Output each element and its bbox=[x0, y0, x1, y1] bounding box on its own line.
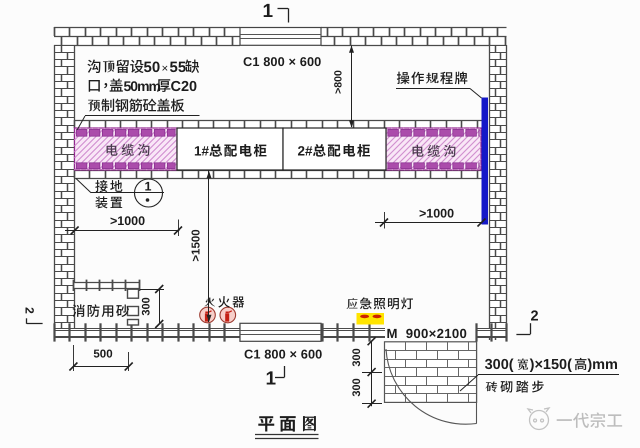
svg-text:>1000: >1000 bbox=[110, 214, 145, 228]
svg-text:300(: 300( bbox=[485, 357, 514, 373]
svg-text:C20: C20 bbox=[171, 79, 198, 95]
svg-text:2: 2 bbox=[23, 307, 37, 314]
svg-text:55: 55 bbox=[170, 59, 187, 76]
svg-text:M 900×2100: M 900×2100 bbox=[387, 326, 468, 341]
svg-text:1: 1 bbox=[145, 180, 152, 194]
svg-text:>1000: >1000 bbox=[419, 207, 454, 221]
svg-text:2: 2 bbox=[530, 309, 538, 325]
svg-text:300: 300 bbox=[351, 378, 363, 396]
svg-text:1: 1 bbox=[263, 1, 274, 22]
svg-text:C1 800 × 600: C1 800 × 600 bbox=[243, 54, 321, 69]
svg-text:×: × bbox=[162, 63, 169, 75]
svg-text:)×150(: )×150( bbox=[530, 357, 572, 373]
svg-text:C1 800 × 600: C1 800 × 600 bbox=[244, 346, 322, 361]
svg-text:500: 500 bbox=[93, 349, 112, 361]
svg-text:1#: 1# bbox=[194, 144, 210, 159]
svg-text:>800: >800 bbox=[333, 70, 345, 94]
svg-text:)mm: )mm bbox=[587, 357, 618, 373]
svg-text:50mm: 50mm bbox=[124, 78, 161, 94]
svg-text:>1500: >1500 bbox=[191, 229, 203, 261]
svg-text:300: 300 bbox=[141, 297, 153, 315]
svg-text:2#: 2# bbox=[298, 144, 314, 159]
svg-text:50: 50 bbox=[144, 59, 161, 76]
svg-text:1: 1 bbox=[266, 369, 277, 390]
svg-text:300: 300 bbox=[351, 348, 363, 366]
